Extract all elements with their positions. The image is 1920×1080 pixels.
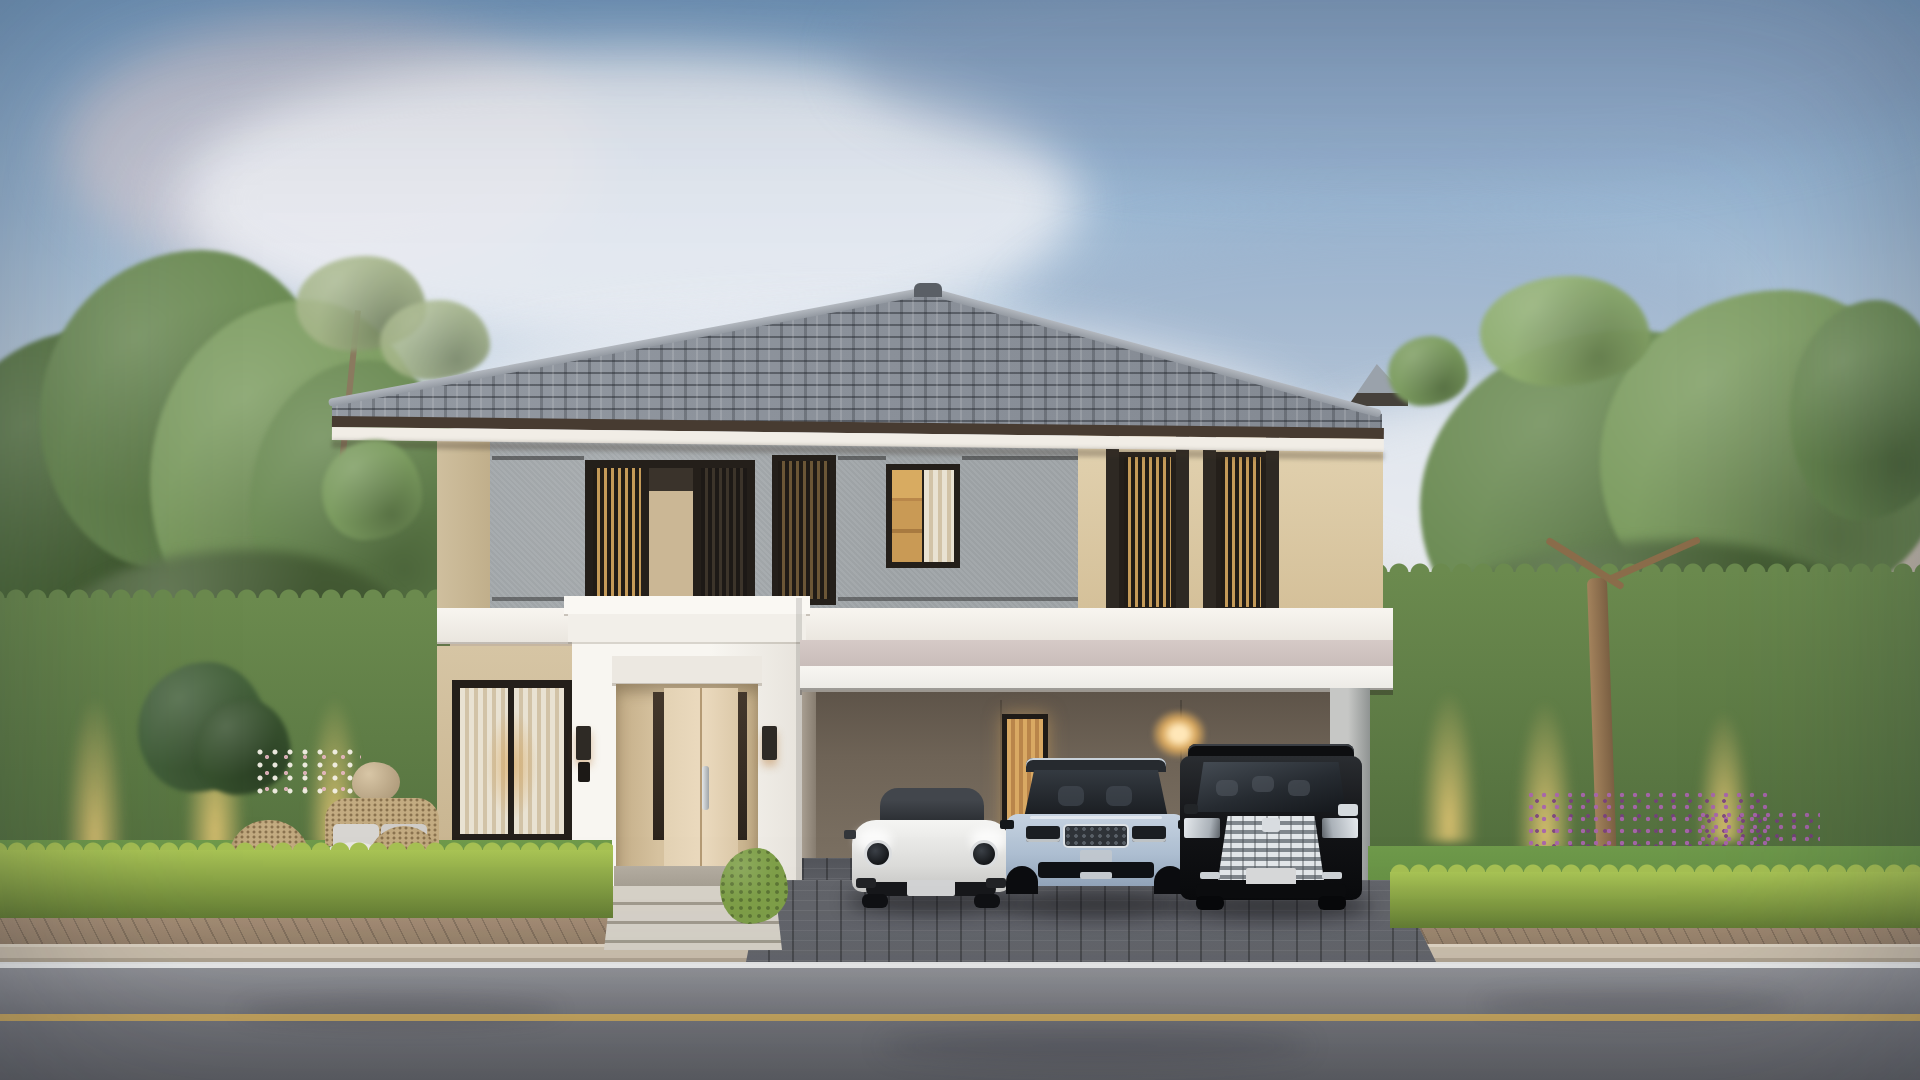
entry-double-door <box>664 688 738 870</box>
road-patch-1 <box>240 996 560 1026</box>
coupe-wheel-left <box>862 894 888 908</box>
suv-seat-hint-left <box>1058 786 1084 806</box>
car-black-van <box>1180 744 1362 912</box>
screen-panel-right-1 <box>1119 452 1176 612</box>
slat-pane-lit <box>593 468 641 596</box>
suv-roof <box>1026 758 1166 772</box>
road-patch-2 <box>880 1028 1310 1064</box>
suv-seat-hint-right <box>1106 786 1132 806</box>
suv-skid-plate <box>1080 872 1112 879</box>
suv-headlight-right <box>1132 826 1166 842</box>
suv-windshield <box>1024 770 1168 818</box>
front-hedge-right <box>1390 872 1920 928</box>
car-silver-suv <box>1006 756 1186 910</box>
van-wheel-left <box>1196 896 1224 910</box>
van-fog-left <box>1200 872 1220 879</box>
road <box>0 968 1920 1080</box>
van-wheel-right <box>1318 896 1346 910</box>
van-fog-right <box>1322 872 1342 879</box>
curtained-pane-sheer <box>924 470 954 562</box>
van-mirror-left <box>1184 804 1198 814</box>
van-seat-hint-3 <box>1288 780 1310 796</box>
door-handle <box>702 766 709 810</box>
stone-reveal-top-mid <box>838 456 886 460</box>
front-hedge-left <box>0 850 613 918</box>
suv-hood-line <box>1030 816 1162 819</box>
screen-panel-right-2 <box>1216 452 1266 612</box>
entry-bush <box>720 848 788 924</box>
portico-cornice <box>564 596 810 614</box>
coupe-headlight-left <box>864 840 892 868</box>
van-mirror-right <box>1338 804 1358 816</box>
front-hedge-left-body <box>0 850 613 918</box>
wall-sconce-right <box>762 726 777 760</box>
van-seat-hint-1 <box>1216 780 1238 796</box>
car-white-coupe <box>852 786 1010 910</box>
stone-reveal-top-left <box>492 456 584 460</box>
upper-window-curtained <box>886 464 960 568</box>
van-emblem <box>1262 818 1280 832</box>
coupe-headlight-right <box>970 840 998 868</box>
scene-stage <box>0 0 1920 1080</box>
suv-arch-left <box>1006 866 1038 894</box>
suv-headlight-left <box>1026 826 1060 842</box>
upper-window-slatted-left <box>585 460 755 604</box>
roof-finial <box>914 283 942 297</box>
coupe-vent-left <box>856 878 876 888</box>
stone-reveal-top-right <box>962 456 1078 460</box>
slat-pane-dark <box>701 468 747 596</box>
coupe-mirror-left <box>844 830 856 839</box>
curtained-pane-interior <box>892 470 922 562</box>
van-seat-hint-2 <box>1252 776 1274 792</box>
coupe-wheel-right <box>974 894 1000 908</box>
suv-mirror-left <box>1000 820 1014 829</box>
entry-recess-header <box>612 656 762 686</box>
carport-fascia <box>800 640 1393 666</box>
garden-boulder <box>352 762 400 802</box>
coupe-license-plate <box>907 880 955 896</box>
van-headlight-left <box>1184 818 1220 838</box>
portico-cornice-step <box>568 614 806 642</box>
front-hedge-right-body <box>1390 872 1920 928</box>
slat-pane-curtain <box>649 468 693 596</box>
suv-grille <box>1063 824 1129 848</box>
van-headlight-right <box>1322 818 1358 838</box>
entry-sidelight-left <box>653 692 664 840</box>
road-center-line <box>0 1014 1920 1021</box>
stone-reveal-bottom-mid <box>838 597 1078 601</box>
upper-screen-panel-center <box>772 455 836 605</box>
carport-beam <box>800 666 1393 690</box>
coupe-vent-right <box>986 878 1006 888</box>
foliage-over-eave <box>322 440 422 540</box>
